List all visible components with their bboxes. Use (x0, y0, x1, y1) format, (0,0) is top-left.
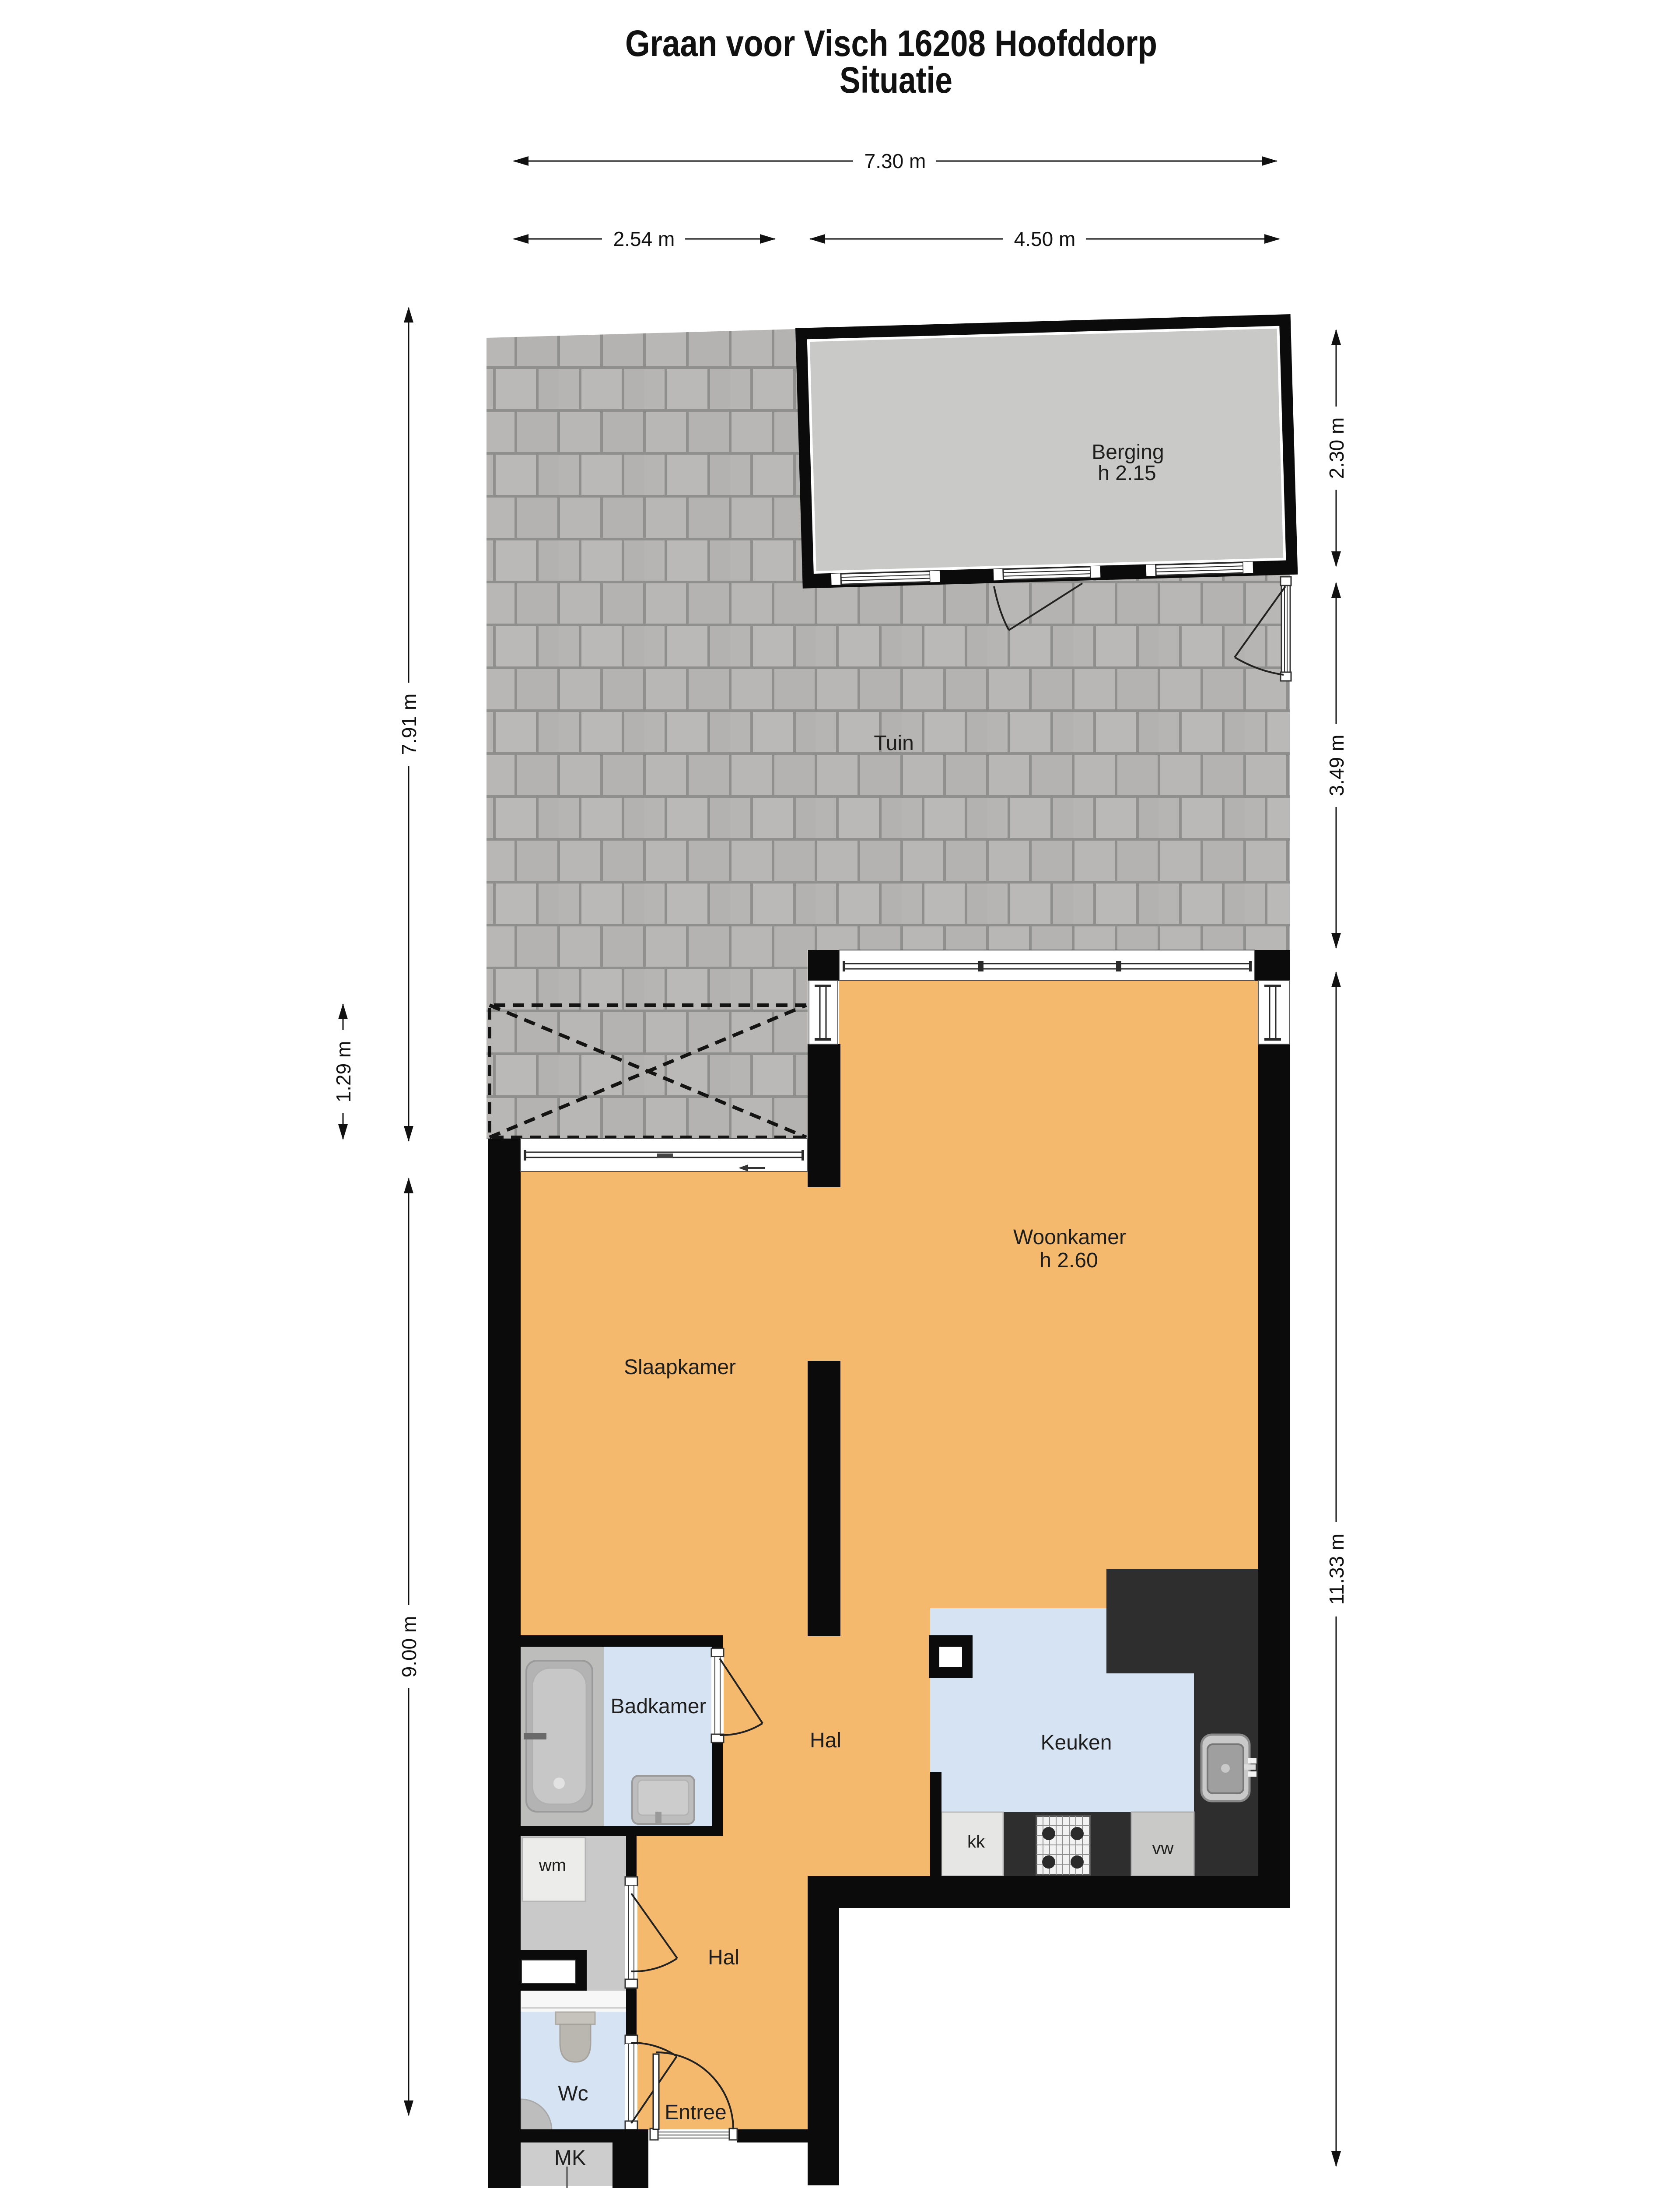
svg-text:Berging: Berging (1092, 441, 1164, 464)
svg-text:vw: vw (1152, 1839, 1174, 1858)
svg-text:7.91 m: 7.91 m (398, 694, 420, 755)
svg-text:Graan voor Visch 16208 Hoofddo: Graan voor Visch 16208 Hoofddorp (625, 23, 1157, 64)
svg-text:7.30 m: 7.30 m (864, 150, 926, 172)
svg-text:Wc: Wc (558, 2082, 588, 2105)
svg-text:2.30 m: 2.30 m (1325, 417, 1348, 479)
svg-text:Slaapkamer: Slaapkamer (624, 1356, 736, 1379)
svg-text:2.54 m: 2.54 m (613, 228, 675, 250)
svg-text:Hal: Hal (810, 1729, 841, 1752)
svg-text:Entree: Entree (665, 2101, 726, 2124)
svg-text:Woonkamer: Woonkamer (1013, 1226, 1126, 1249)
svg-text:kk: kk (967, 1832, 985, 1851)
svg-text:4.50 m: 4.50 m (1014, 228, 1076, 250)
svg-text:wm: wm (539, 1856, 566, 1875)
svg-text:9.00 m: 9.00 m (398, 1616, 420, 1678)
svg-text:Keuken: Keuken (1041, 1731, 1112, 1754)
svg-text:3.49 m: 3.49 m (1325, 735, 1348, 796)
svg-text:h 2.60: h 2.60 (1039, 1249, 1098, 1272)
svg-text:1.29 m: 1.29 m (332, 1041, 355, 1103)
svg-text:11.33 m: 11.33 m (1325, 1534, 1348, 1605)
svg-text:Tuin: Tuin (874, 732, 914, 755)
svg-text:MK: MK (554, 2146, 586, 2170)
svg-text:Situatie: Situatie (840, 60, 952, 101)
svg-text:Badkamer: Badkamer (611, 1695, 707, 1718)
svg-text:h 2.15: h 2.15 (1098, 462, 1156, 485)
svg-text:Hal: Hal (708, 1946, 739, 1969)
